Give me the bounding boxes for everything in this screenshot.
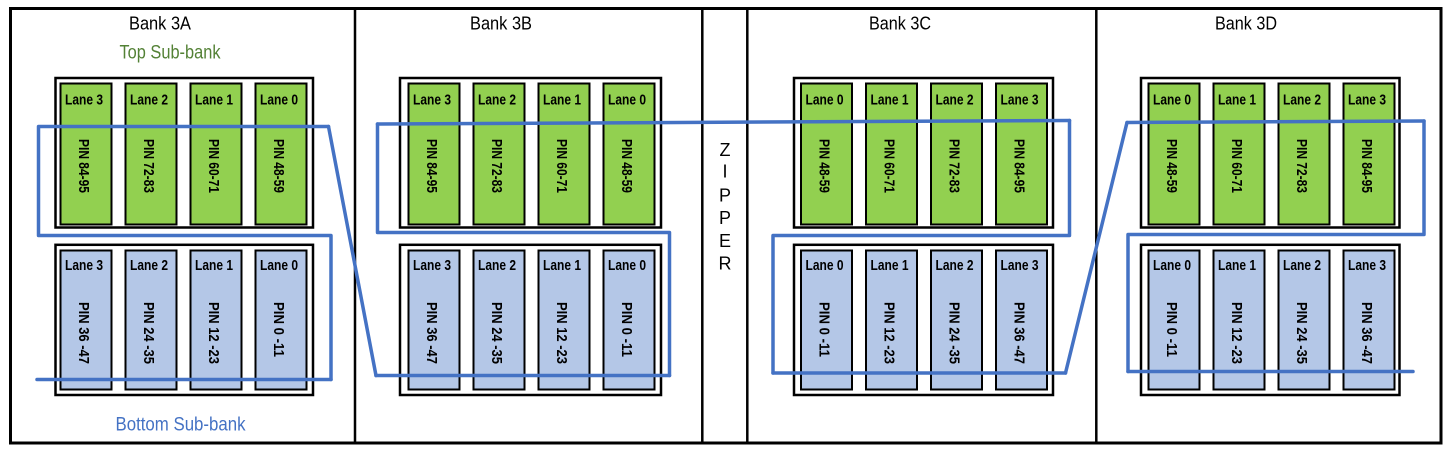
svg-text:PIN 84-95: PIN 84-95: [1358, 139, 1374, 193]
svg-text:Lane 0: Lane 0: [806, 257, 844, 274]
svg-text:PIN 24 -35: PIN 24 -35: [1293, 302, 1309, 364]
svg-text:E: E: [719, 231, 731, 251]
svg-text:PIN 48-59: PIN 48-59: [816, 139, 832, 193]
svg-text:PIN 36 -47: PIN 36 -47: [1358, 302, 1374, 364]
svg-text:Lane 0: Lane 0: [608, 92, 646, 109]
svg-text:Lane 1: Lane 1: [543, 92, 581, 109]
svg-text:Lane 1: Lane 1: [195, 92, 233, 109]
svg-text:R: R: [719, 254, 732, 274]
svg-text:Lane 3: Lane 3: [65, 92, 103, 109]
svg-text:Lane 3: Lane 3: [1348, 92, 1386, 109]
svg-text:Bottom Sub-bank: Bottom Sub-bank: [116, 415, 246, 436]
svg-text:Lane 3: Lane 3: [1001, 92, 1039, 109]
svg-text:PIN 12 -23: PIN 12 -23: [205, 302, 221, 364]
svg-text:I: I: [722, 162, 727, 182]
svg-text:Lane 2: Lane 2: [130, 92, 168, 109]
svg-text:PIN 48-59: PIN 48-59: [1163, 139, 1179, 193]
svg-text:Lane 3: Lane 3: [413, 257, 451, 274]
svg-text:PIN 24 -35: PIN 24 -35: [488, 302, 504, 364]
svg-text:PIN 84-95: PIN 84-95: [1011, 139, 1027, 193]
svg-text:PIN 0 -11: PIN 0 -11: [270, 302, 286, 357]
svg-text:Bank 3C: Bank 3C: [869, 14, 931, 34]
svg-text:Lane 0: Lane 0: [608, 257, 646, 274]
svg-text:Lane 3: Lane 3: [1348, 257, 1386, 274]
svg-text:PIN 48-59: PIN 48-59: [618, 139, 634, 193]
svg-text:Lane 2: Lane 2: [130, 257, 168, 274]
svg-text:PIN 0 -11: PIN 0 -11: [618, 302, 634, 357]
svg-text:Bank 3A: Bank 3A: [129, 14, 191, 34]
svg-text:PIN 84-95: PIN 84-95: [75, 139, 91, 193]
svg-text:PIN 60-71: PIN 60-71: [553, 139, 569, 193]
svg-text:PIN 12 -23: PIN 12 -23: [881, 302, 897, 364]
svg-text:PIN 36 -47: PIN 36 -47: [1011, 302, 1027, 364]
svg-text:PIN 12 -23: PIN 12 -23: [1228, 302, 1244, 364]
svg-text:PIN 60-71: PIN 60-71: [881, 139, 897, 193]
svg-text:Lane 0: Lane 0: [260, 92, 298, 109]
svg-text:PIN 84-95: PIN 84-95: [423, 139, 439, 193]
svg-text:Lane 2: Lane 2: [936, 257, 974, 274]
svg-text:PIN 36 -47: PIN 36 -47: [75, 302, 91, 364]
svg-text:PIN 72-83: PIN 72-83: [1293, 139, 1309, 193]
svg-text:PIN 60-71: PIN 60-71: [1228, 139, 1244, 193]
svg-text:Lane 0: Lane 0: [260, 257, 298, 274]
svg-text:Lane 2: Lane 2: [478, 257, 516, 274]
svg-text:Lane 1: Lane 1: [195, 257, 233, 274]
svg-text:PIN 72-83: PIN 72-83: [946, 139, 962, 193]
svg-text:PIN 24 -35: PIN 24 -35: [140, 302, 156, 364]
svg-text:PIN 36 -47: PIN 36 -47: [423, 302, 439, 364]
svg-text:Lane 1: Lane 1: [1218, 257, 1256, 274]
svg-text:PIN 0 -11: PIN 0 -11: [1163, 302, 1179, 357]
svg-text:PIN 12 -23: PIN 12 -23: [553, 302, 569, 364]
svg-text:Lane 0: Lane 0: [1153, 257, 1191, 274]
svg-text:Lane 3: Lane 3: [1001, 257, 1039, 274]
svg-text:PIN 72-83: PIN 72-83: [488, 139, 504, 193]
svg-text:Lane 2: Lane 2: [478, 92, 516, 109]
svg-text:Lane 3: Lane 3: [65, 257, 103, 274]
svg-text:PIN 72-83: PIN 72-83: [140, 139, 156, 193]
svg-text:PIN 24 -35: PIN 24 -35: [946, 302, 962, 364]
svg-text:Lane 1: Lane 1: [1218, 92, 1256, 109]
svg-text:PIN 0 -11: PIN 0 -11: [816, 302, 832, 357]
svg-text:PIN 48-59: PIN 48-59: [270, 139, 286, 193]
svg-text:PIN 60-71: PIN 60-71: [205, 139, 221, 193]
svg-text:P: P: [719, 208, 731, 228]
svg-text:Lane 0: Lane 0: [1153, 92, 1191, 109]
svg-text:Lane 1: Lane 1: [871, 92, 909, 109]
svg-text:Lane 3: Lane 3: [413, 92, 451, 109]
svg-text:Bank 3B: Bank 3B: [470, 14, 532, 34]
svg-text:Bank 3D: Bank 3D: [1215, 14, 1277, 34]
svg-text:Lane 2: Lane 2: [1283, 257, 1321, 274]
svg-text:Lane 2: Lane 2: [936, 92, 974, 109]
svg-text:Lane 2: Lane 2: [1283, 92, 1321, 109]
svg-text:Lane 1: Lane 1: [543, 257, 581, 274]
svg-text:Lane 0: Lane 0: [806, 92, 844, 109]
svg-text:Z: Z: [720, 140, 731, 160]
svg-text:Lane 1: Lane 1: [871, 257, 909, 274]
svg-text:Top Sub-bank: Top Sub-bank: [120, 43, 221, 64]
svg-text:P: P: [719, 185, 731, 205]
